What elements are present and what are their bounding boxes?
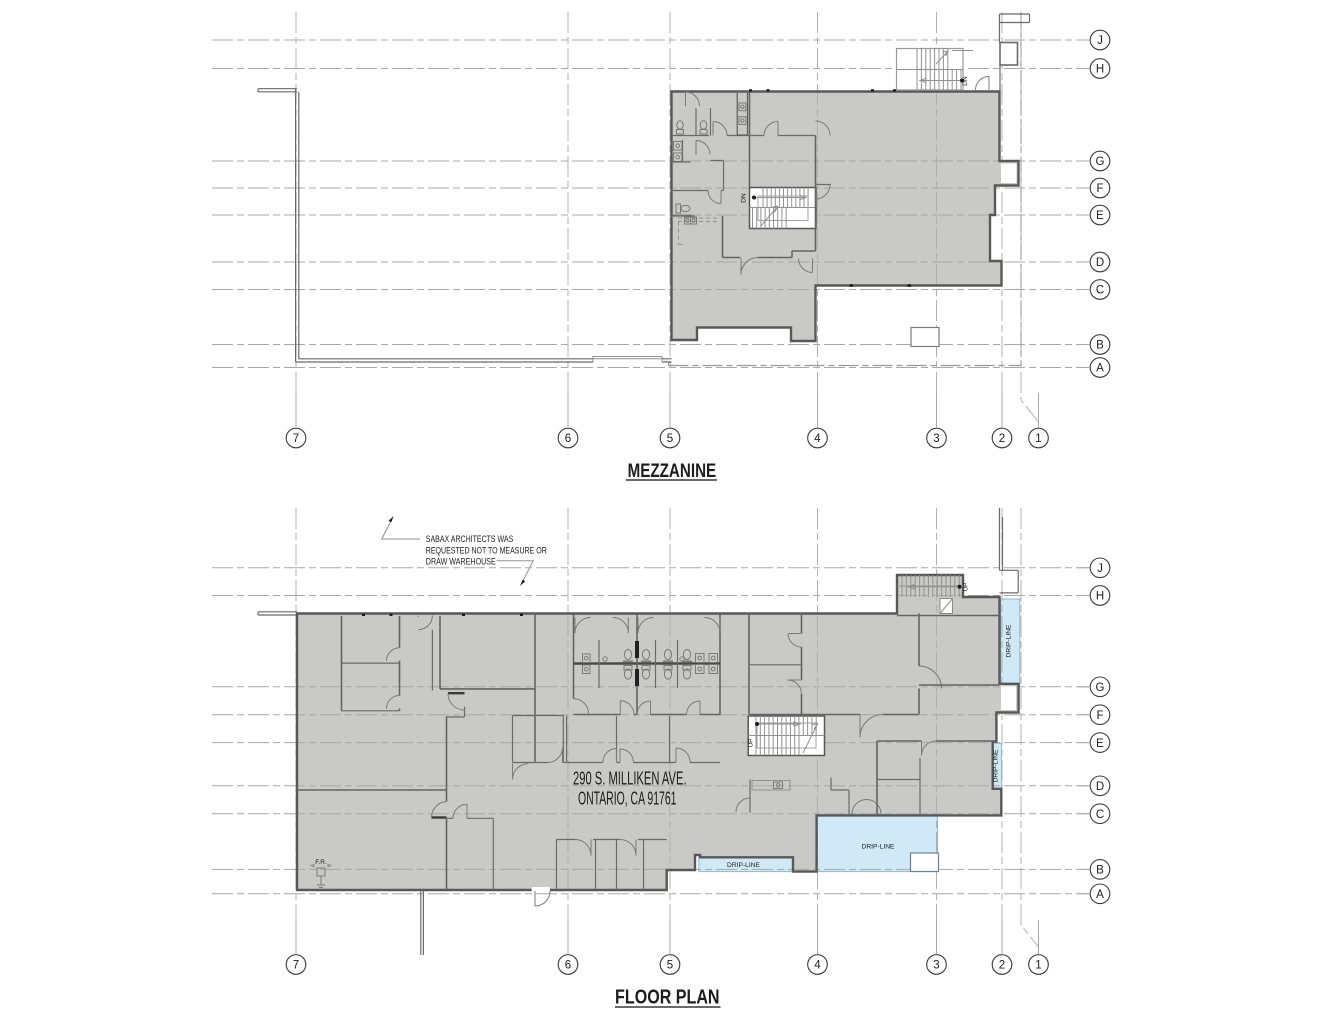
- svg-text:REQUESTED NOT TO MEASURE OR: REQUESTED NOT TO MEASURE OR: [426, 545, 547, 555]
- svg-text:A: A: [1096, 363, 1104, 375]
- svg-text:6: 6: [565, 960, 571, 972]
- svg-text:290 S. MILLIKEN AVE.: 290 S. MILLIKEN AVE.: [573, 768, 687, 789]
- svg-text:B: B: [1096, 340, 1104, 352]
- svg-text:2: 2: [999, 433, 1005, 445]
- svg-text:D: D: [1096, 257, 1104, 269]
- svg-text:B: B: [1096, 865, 1104, 877]
- svg-text:C: C: [1096, 809, 1104, 821]
- svg-text:7: 7: [293, 433, 299, 445]
- svg-text:UP: UP: [748, 738, 755, 747]
- svg-text:H: H: [1096, 591, 1104, 603]
- svg-text:1: 1: [1035, 433, 1041, 445]
- svg-text:A: A: [1096, 889, 1104, 901]
- svg-text:5: 5: [667, 433, 673, 445]
- svg-text:DRIP-LINE: DRIP-LINE: [862, 844, 895, 851]
- svg-text:DRIP-LINE: DRIP-LINE: [992, 750, 999, 783]
- svg-text:FLOOR PLAN: FLOOR PLAN: [615, 986, 720, 1009]
- svg-text:F.R.: F.R.: [315, 859, 327, 866]
- svg-text:DRAW WAREHOUSE: DRAW WAREHOUSE: [426, 557, 496, 567]
- svg-text:ONTARIO, CA 91761: ONTARIO, CA 91761: [578, 788, 677, 809]
- svg-text:3: 3: [933, 960, 939, 972]
- svg-text:7: 7: [293, 960, 299, 972]
- svg-text:DRIP-LINE: DRIP-LINE: [727, 862, 760, 869]
- svg-text:E: E: [1096, 210, 1104, 222]
- svg-text:4: 4: [814, 433, 821, 445]
- svg-text:F: F: [1096, 710, 1103, 722]
- svg-text:DRIP-LINE: DRIP-LINE: [1006, 625, 1013, 658]
- svg-text:C: C: [1096, 285, 1104, 297]
- svg-text:6: 6: [565, 433, 571, 445]
- svg-text:G: G: [1096, 156, 1105, 168]
- svg-text:UP: UP: [963, 582, 970, 591]
- svg-text:4: 4: [814, 960, 821, 972]
- svg-text:SABAX ARCHITECTS WAS: SABAX ARCHITECTS WAS: [426, 534, 514, 544]
- svg-text:G: G: [1096, 682, 1105, 694]
- svg-text:DN: DN: [741, 193, 748, 203]
- svg-text:1: 1: [1035, 960, 1041, 972]
- svg-text:J: J: [1097, 35, 1103, 47]
- svg-text:D: D: [1096, 781, 1104, 793]
- svg-text:5: 5: [667, 960, 673, 972]
- svg-text:E: E: [1096, 738, 1104, 750]
- svg-text:DN: DN: [962, 76, 969, 86]
- svg-text:MEZZANINE: MEZZANINE: [628, 461, 717, 482]
- svg-text:J: J: [1097, 563, 1103, 575]
- svg-text:H: H: [1096, 64, 1104, 76]
- svg-text:3: 3: [933, 433, 939, 445]
- svg-text:2: 2: [999, 960, 1005, 972]
- svg-text:F: F: [1096, 183, 1103, 195]
